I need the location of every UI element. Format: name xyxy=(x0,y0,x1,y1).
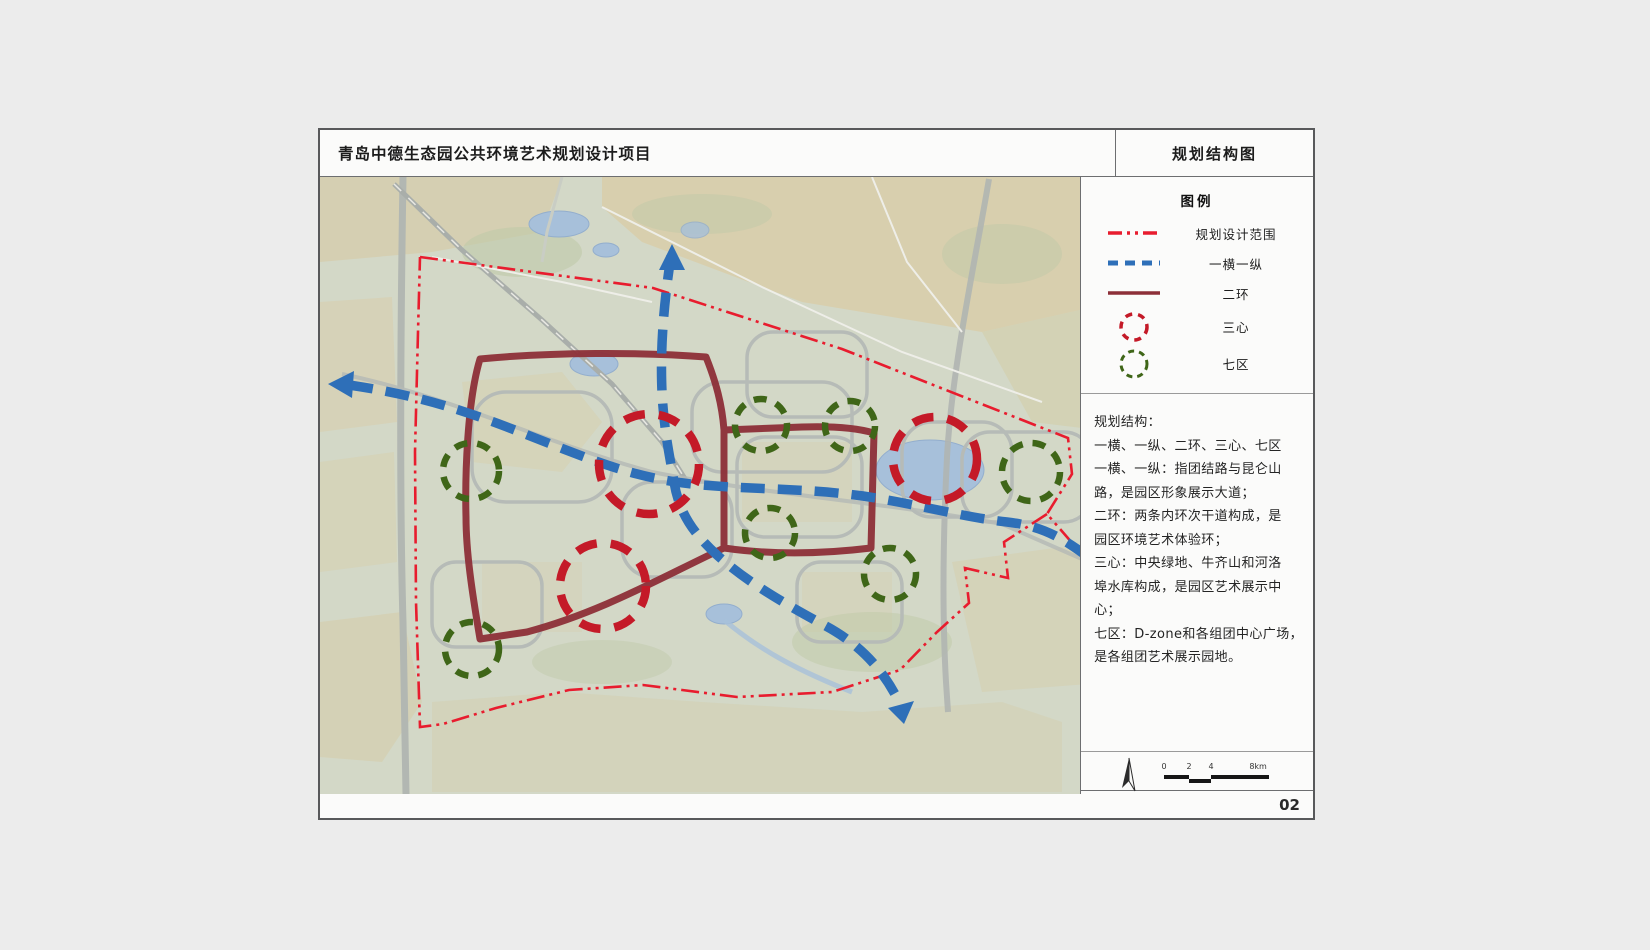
red-dashed-circle-icon xyxy=(1103,310,1165,344)
map-area xyxy=(320,177,1081,794)
legend-item-three-hearts: 三心 xyxy=(1081,308,1313,345)
map-furniture: 0 2 4 8km xyxy=(1081,752,1313,790)
legend-item-second-ring: 二环 xyxy=(1081,278,1313,308)
maroon-solid-line-icon xyxy=(1103,288,1165,298)
arrowhead-east xyxy=(1080,547,1081,570)
sheet-footer: 02 xyxy=(320,790,1313,818)
legend-title: 图例 xyxy=(1081,190,1313,210)
notes-heading: 规划结构： xyxy=(1094,411,1303,435)
legend-item-seven-zones: 七区 xyxy=(1081,345,1313,382)
legend-item-boundary: 规划设计范围 xyxy=(1081,218,1313,248)
title-bar: 青岛中德生态园公共环境艺术规划设计项目 规划结构图 xyxy=(320,130,1313,177)
info-panel: 图例 规划设计范围 一横一纵 xyxy=(1081,177,1313,790)
north-arrow-icon xyxy=(1117,756,1139,794)
legend: 图例 规划设计范围 一横一纵 xyxy=(1081,177,1313,394)
page-number: 02 xyxy=(1279,796,1300,814)
planning-map xyxy=(320,177,1081,794)
blue-dashed-line-icon xyxy=(1103,258,1165,268)
red-dashdot-line-icon xyxy=(1103,228,1165,238)
planning-notes: 规划结构： 一横、一纵、二环、三心、七区 一横、一纵：指团结路与昆仑山 路，是园… xyxy=(1081,394,1313,752)
project-title: 青岛中德生态园公共环境艺术规划设计项目 xyxy=(320,130,1116,176)
scale-bar: 0 2 4 8km xyxy=(1161,762,1276,788)
sheet-body: 图例 规划设计范围 一横一纵 xyxy=(320,177,1313,790)
legend-item-axes: 一横一纵 xyxy=(1081,248,1313,278)
sheet-title: 规划结构图 xyxy=(1116,130,1313,176)
green-dashed-circle-icon xyxy=(1103,347,1165,381)
plan-sheet: 青岛中德生态园公共环境艺术规划设计项目 规划结构图 xyxy=(318,128,1315,820)
